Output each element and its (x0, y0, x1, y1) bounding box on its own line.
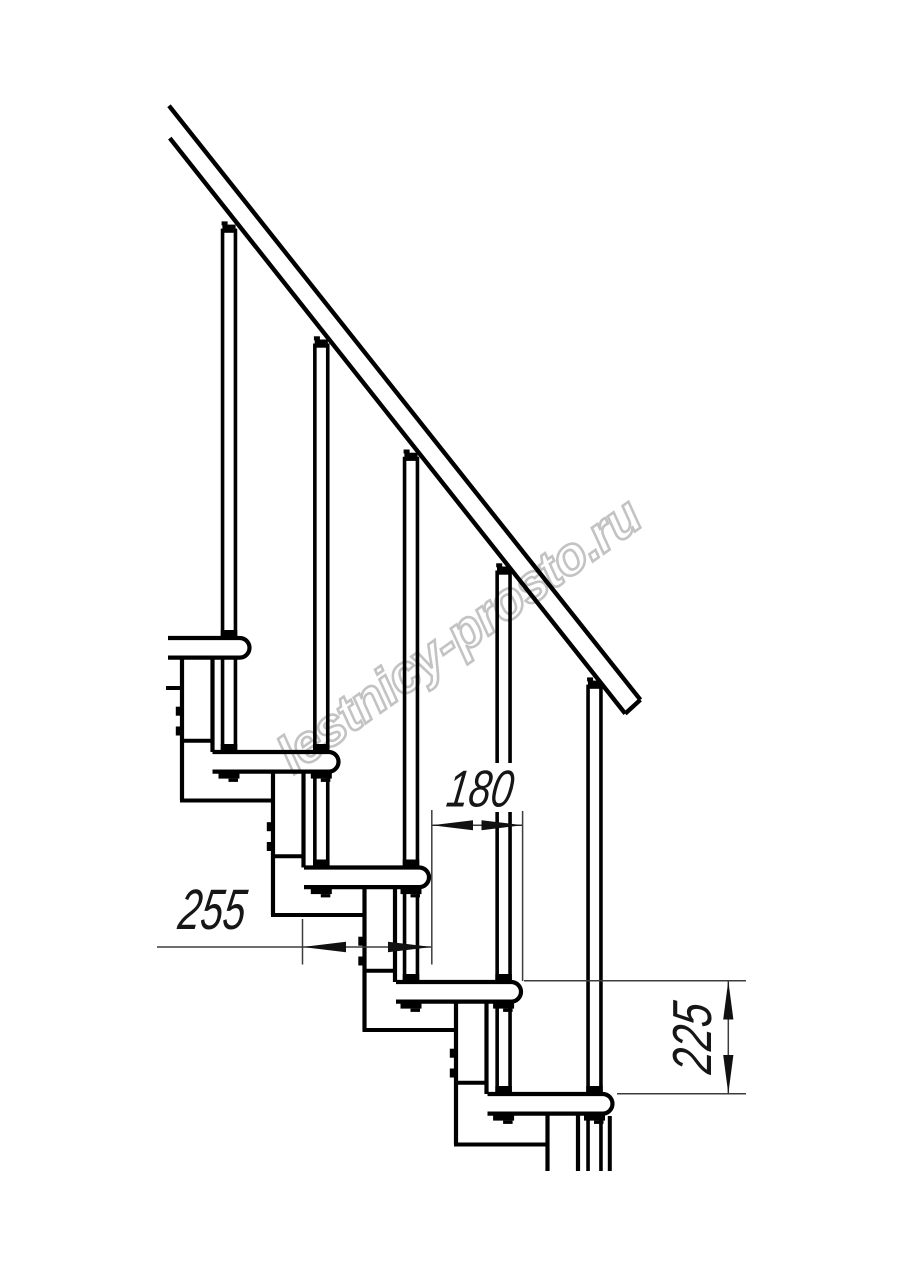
svg-text:255: 255 (174, 878, 251, 941)
svg-text:180: 180 (443, 760, 517, 818)
svg-text:225: 225 (663, 998, 723, 1078)
